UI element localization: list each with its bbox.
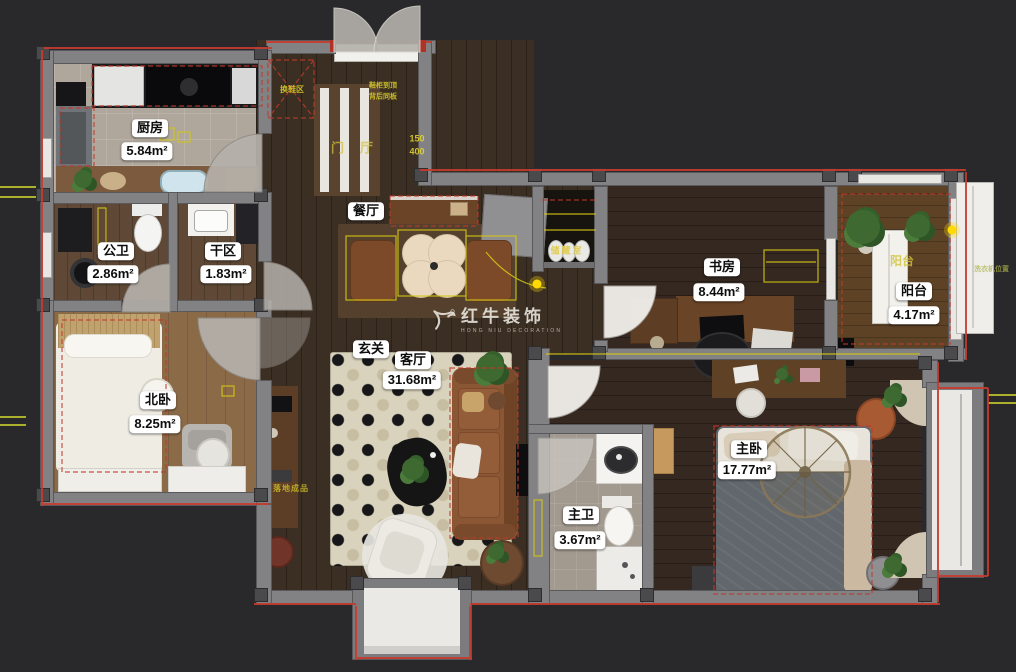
entry-threshold xyxy=(334,44,422,62)
coffee-table-plant xyxy=(402,458,424,480)
dimension-400: 400 xyxy=(409,148,424,157)
coffee-cup xyxy=(430,452,436,458)
wall-pillar xyxy=(36,46,50,60)
wall-pillar xyxy=(592,346,606,360)
room-label-master-bedroom: 主卧 xyxy=(731,440,767,458)
bedroom-plant xyxy=(884,556,902,574)
wall-pillar xyxy=(918,588,932,602)
sideboard-top xyxy=(390,196,478,200)
vanity-chair xyxy=(736,388,766,418)
fruit-bowl xyxy=(100,172,126,190)
picture-frame xyxy=(450,202,468,216)
curtain-note: 落地成品 xyxy=(273,485,309,493)
room-label-kitchen: 厨房 xyxy=(132,119,168,137)
fridge xyxy=(94,66,144,106)
balcony-floor-tag: 阳台 xyxy=(890,255,914,267)
wall xyxy=(824,300,838,350)
wall-pillar xyxy=(528,168,542,182)
foyer-floor-tag: 门厅 xyxy=(315,142,389,155)
room-area-master-bath: 3.67m² xyxy=(554,531,605,549)
wall xyxy=(824,186,838,240)
cabinet-note-line1: 鞋柜到顶 xyxy=(369,83,397,90)
kitchen-plant xyxy=(74,170,92,188)
kitchen-sink xyxy=(160,170,208,194)
room-area-balcony: 4.17m² xyxy=(888,306,939,324)
wall-pillar xyxy=(822,346,836,360)
wall xyxy=(40,300,54,506)
wall-pillar xyxy=(36,298,50,312)
living-bay-window-sill xyxy=(364,588,460,646)
toilet-bowl xyxy=(134,214,162,252)
sofa-armrest xyxy=(454,524,516,540)
floorplan-canvas: 门厅 储藏室 阳台 150 400 鞋柜到顶 背后同板 换鞋区 落地成品 洗衣机… xyxy=(0,0,1016,672)
north-desk xyxy=(168,466,246,494)
wall xyxy=(256,380,272,504)
room-label-public-bath: 公卫 xyxy=(98,242,134,260)
wall-pillar xyxy=(640,588,654,602)
wall xyxy=(258,50,272,134)
wall xyxy=(168,192,178,312)
wall xyxy=(642,424,654,604)
dresser-plant xyxy=(776,368,788,380)
room-label-living: 客厅 xyxy=(395,351,431,369)
kitchen-appliance xyxy=(56,82,86,106)
wall-pillar xyxy=(36,488,50,502)
wall-pillar xyxy=(254,46,268,60)
entry-zone-note: 换鞋区 xyxy=(280,86,304,94)
master-bay-window-sill xyxy=(932,390,972,570)
shower-tray xyxy=(596,546,646,594)
balcony-plant-small xyxy=(906,214,930,238)
window xyxy=(42,138,52,178)
window xyxy=(42,232,52,278)
wall xyxy=(258,192,272,262)
bay-sill-edge xyxy=(364,646,460,654)
edge-tick xyxy=(0,196,36,198)
shoe-cabinet-panel xyxy=(320,88,329,192)
master-pillow xyxy=(787,428,858,462)
wall xyxy=(468,590,530,604)
wall xyxy=(418,40,432,186)
window-bench xyxy=(58,468,162,492)
wall xyxy=(528,348,550,604)
sofa-throw xyxy=(452,442,482,479)
wall xyxy=(530,590,938,604)
room-area-north-bedroom: 8.25m² xyxy=(129,415,180,433)
wall xyxy=(594,186,608,284)
room-area-master-bedroom: 17.77m² xyxy=(718,461,776,479)
wall-pillar xyxy=(36,188,50,202)
storage-floor-tag: 储藏室 xyxy=(550,247,583,256)
master-toilet-bowl xyxy=(604,506,634,546)
wall xyxy=(528,424,654,434)
room-label-dry-area: 干区 xyxy=(205,242,241,260)
north-bed-pillows xyxy=(64,334,152,358)
cutting-board xyxy=(226,168,256,192)
room-area-living: 31.68m² xyxy=(383,371,441,389)
room-area-public-bath: 2.86m² xyxy=(87,265,138,283)
wall xyxy=(40,492,272,506)
dining-chair-right xyxy=(466,240,512,302)
wall-pillar xyxy=(254,588,268,602)
wall-pillar xyxy=(944,168,958,182)
stove-burner xyxy=(180,78,198,96)
watermark-brand: 红牛装饰 xyxy=(461,308,562,325)
wall-pillar xyxy=(822,168,836,182)
exterior-cabinet-seam xyxy=(972,186,974,328)
balcony-cabinet-seam xyxy=(888,234,890,318)
cabinet-door xyxy=(60,112,86,164)
room-label-dining: 餐厅 xyxy=(348,202,384,220)
sofa-side-plant xyxy=(476,354,504,382)
jewelry-box xyxy=(800,368,820,382)
edge-tick xyxy=(0,186,36,188)
room-label-entry: 玄关 xyxy=(353,340,389,358)
room-area-kitchen: 5.84m² xyxy=(121,142,172,160)
wall-pillar xyxy=(414,168,428,182)
room-label-north-bedroom: 北卧 xyxy=(140,391,176,409)
room-label-master-bath: 主卫 xyxy=(563,506,599,524)
wall xyxy=(598,348,966,360)
wall-pillar xyxy=(528,346,542,360)
wall-pillar xyxy=(944,346,958,360)
wall-pillar xyxy=(918,356,932,370)
bath-basin xyxy=(604,446,638,474)
bay-glass-line xyxy=(960,394,962,566)
shower-drain xyxy=(630,574,635,579)
wall-pillar xyxy=(592,168,606,182)
balcony-plant-large xyxy=(846,210,880,244)
dining-table xyxy=(402,234,466,298)
edge-tick xyxy=(988,394,1016,396)
sofa-cushion xyxy=(458,476,500,518)
planter-greens xyxy=(488,544,504,560)
edge-tick xyxy=(988,402,1016,404)
vanity-basin xyxy=(194,210,228,232)
wall-pillar xyxy=(528,588,542,602)
wall-pillar xyxy=(254,488,268,502)
shower-fixture xyxy=(58,208,92,252)
dish-rack xyxy=(232,68,256,104)
wall-pillar xyxy=(254,298,268,312)
window xyxy=(826,238,836,300)
plant-pot xyxy=(488,392,506,410)
dining-chair-left xyxy=(350,240,396,302)
wall-pillar xyxy=(458,576,472,590)
watermark-subtitle: HONG NIU DECORATION xyxy=(461,328,562,334)
wall-pillar xyxy=(350,576,364,590)
wall xyxy=(40,50,272,64)
basin-drain xyxy=(616,454,622,460)
washer-note: 洗衣机位置 xyxy=(974,266,1009,273)
room-label-balcony: 阳台 xyxy=(896,282,932,300)
room-area-dry-area: 1.83m² xyxy=(200,265,251,283)
exterior-cabinet xyxy=(956,182,994,334)
room-area-study: 8.44m² xyxy=(693,283,744,301)
window xyxy=(858,174,942,184)
wall-pillar xyxy=(254,188,268,202)
laptop xyxy=(733,364,759,383)
room-label-study: 书房 xyxy=(704,258,740,276)
wall xyxy=(532,186,544,272)
watermark: 红牛装饰 HONG NIU DECORATION xyxy=(430,308,562,334)
sofa-pillow xyxy=(462,392,484,412)
shower-drain xyxy=(622,562,628,568)
wall xyxy=(40,192,272,204)
cabinet-note-line2: 背后同板 xyxy=(369,94,397,101)
nightstand xyxy=(692,566,716,592)
wall xyxy=(266,40,336,54)
edge-tick xyxy=(0,416,26,418)
bedroom-plant xyxy=(884,386,902,404)
dimension-150: 150 xyxy=(409,135,424,144)
hongniu-bull-icon xyxy=(430,308,456,332)
edge-tick xyxy=(0,424,26,426)
